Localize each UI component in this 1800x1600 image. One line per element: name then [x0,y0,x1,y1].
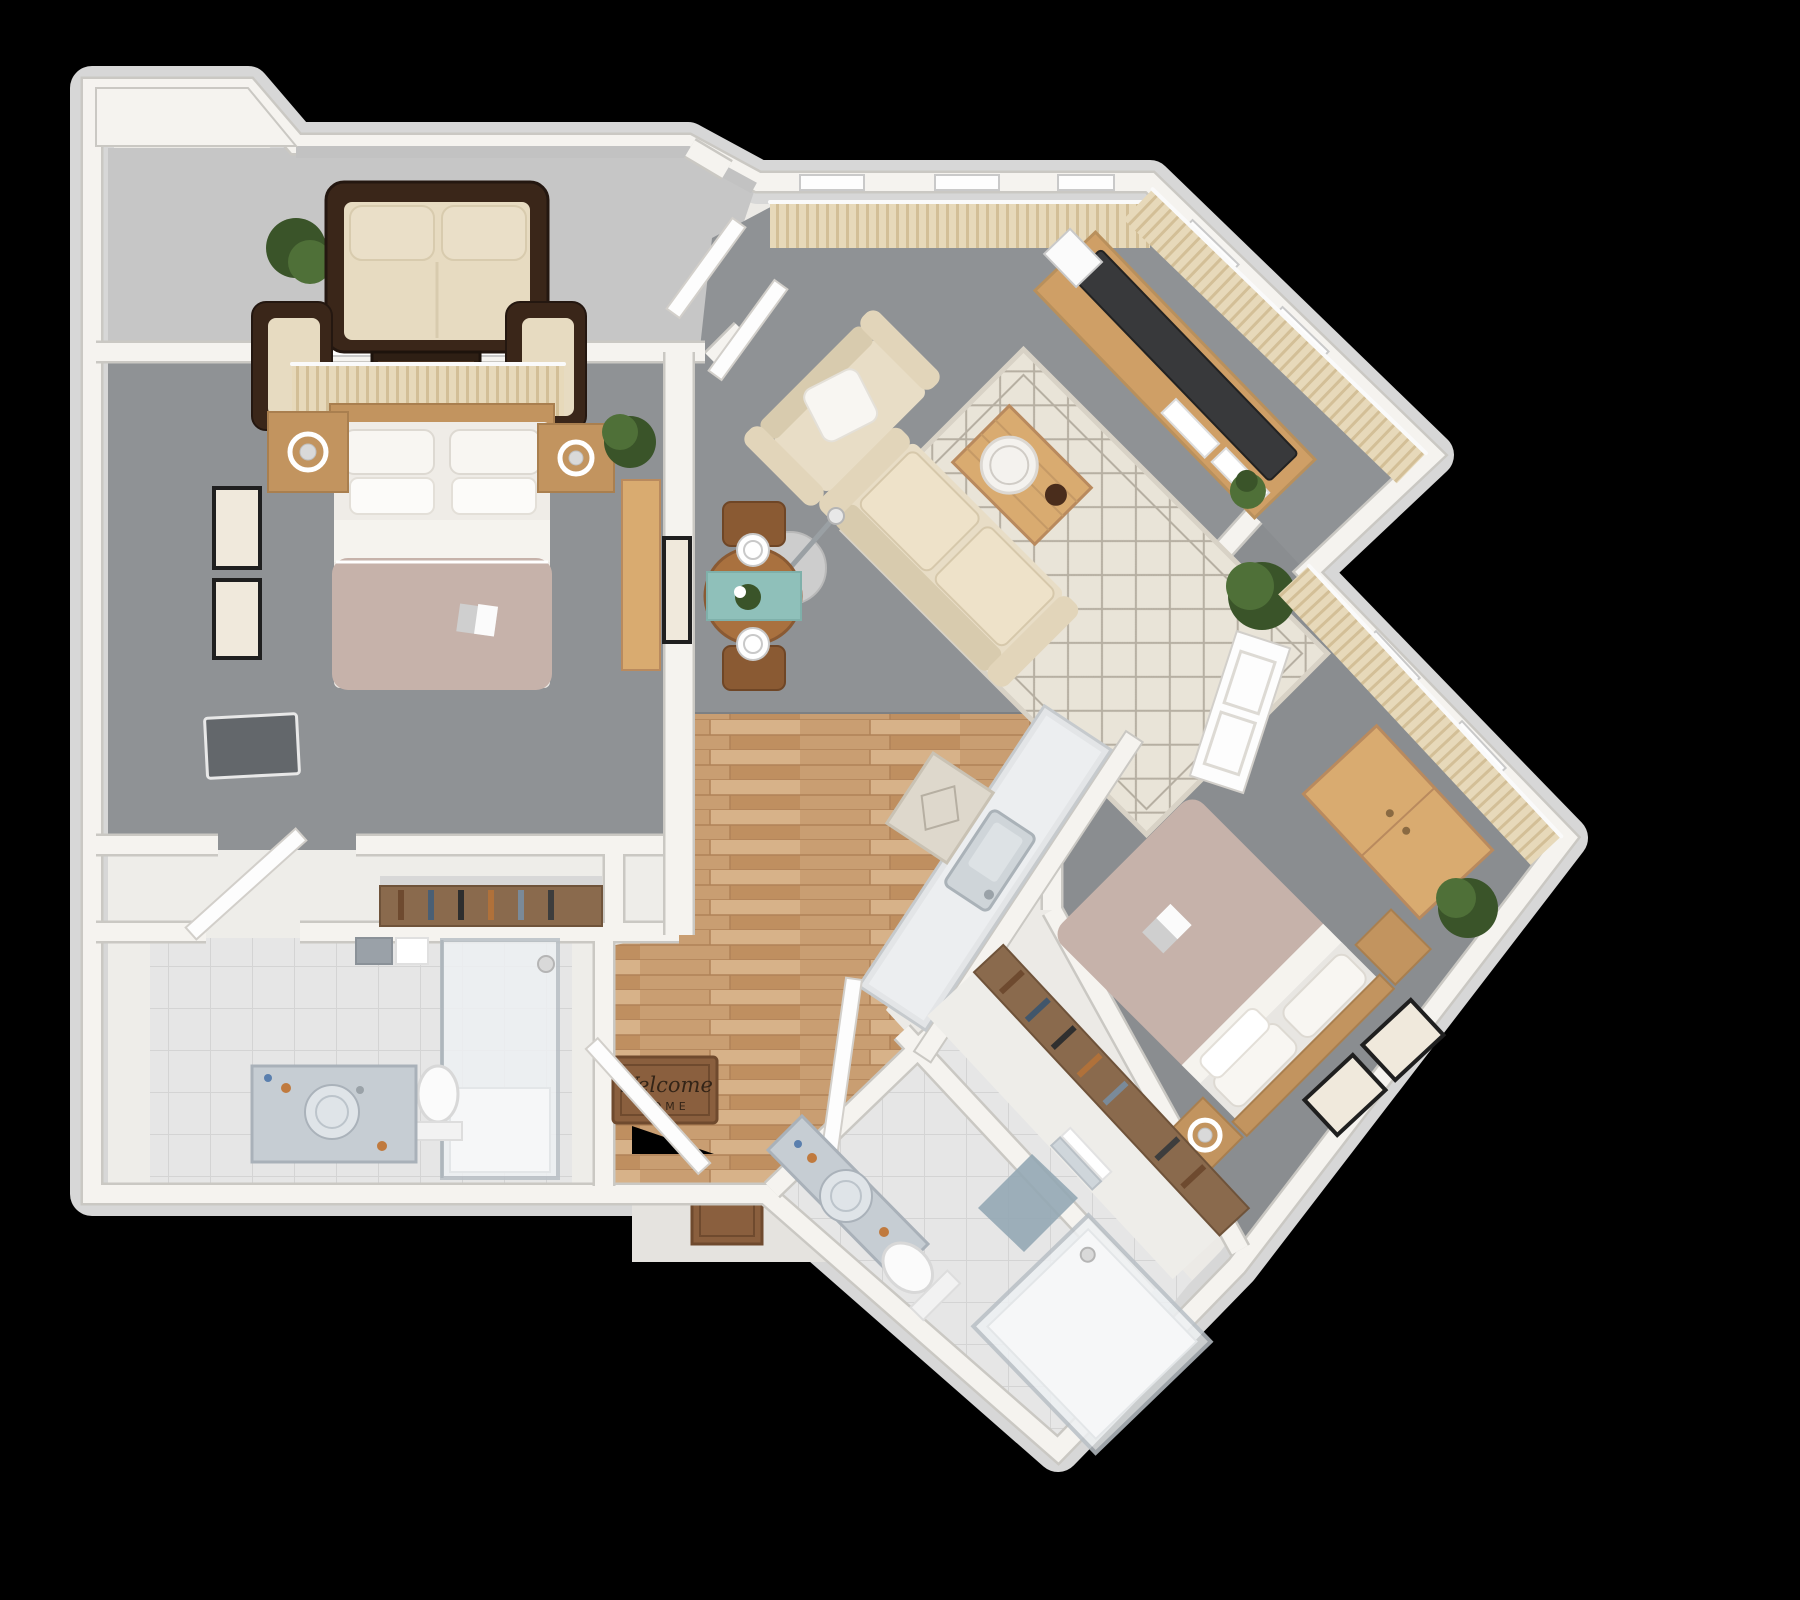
dining-wall-art [664,538,690,642]
master-shower [442,940,558,1178]
toiletry-bottle-icon [281,1083,291,1093]
faucet-icon [356,1086,364,1094]
floor-plan-svg: Welcome HOME [0,0,1800,1600]
toiletry-bottle-icon [377,1141,387,1151]
wall-art-2 [214,580,260,658]
living-window-3 [1058,175,1114,190]
nightstand-left [268,412,348,492]
shower-head-icon [538,956,554,972]
toiletry-bottle-icon [879,1227,889,1237]
toothbrush-cup-icon [794,1140,802,1148]
wall-art-1 [214,488,260,568]
master-toilet [414,1066,462,1140]
master-bed [330,404,554,690]
toiletry-bottle-icon [807,1153,817,1163]
floor-plan-canvas: Welcome HOME [0,0,1800,1600]
master-vanity [252,1066,416,1162]
toothbrush-cup-icon [264,1074,272,1082]
towel-gray-icon [356,938,392,964]
living-window-2 [935,175,999,190]
sink-icon [820,1170,872,1222]
towel-white-icon [396,938,428,964]
book-on-bed-icon [456,603,498,636]
sink-icon [305,1085,359,1139]
master-closet [380,876,602,926]
master-desk [622,480,660,670]
living-window-1 [800,175,864,190]
master-wall-tv [204,714,299,779]
